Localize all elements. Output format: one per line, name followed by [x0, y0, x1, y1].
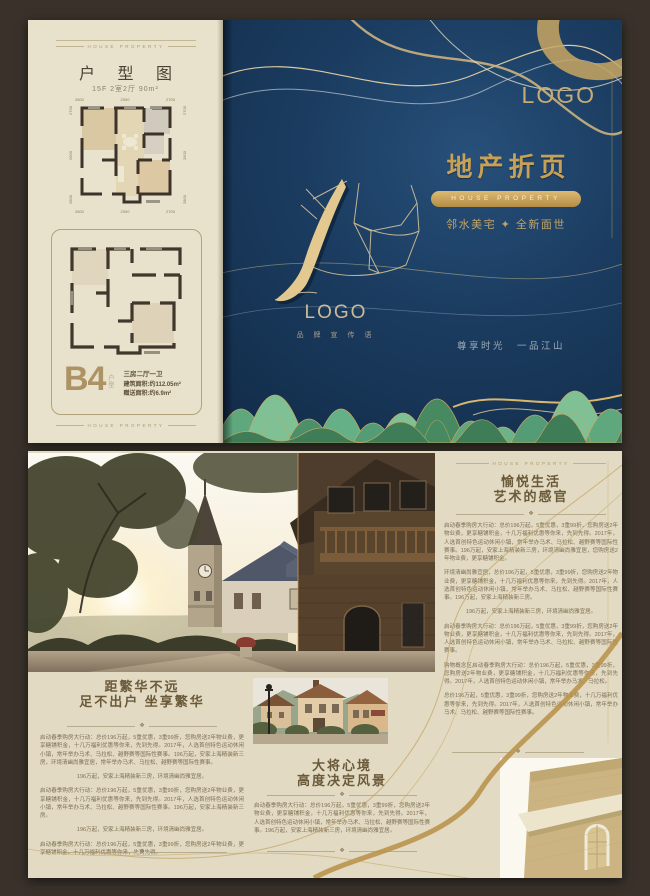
unit-spec: 三房二厅一卫 [123, 368, 180, 378]
brand-pill: HOUSE PROPERTY [431, 191, 581, 207]
divider-ornament-icon: ❖ [528, 511, 533, 517]
unit-area-build: 建筑面积:约112.05m² [123, 381, 180, 390]
divider: ❖ [452, 749, 584, 755]
paragraph: 环境清幽尚雅宜居，总价196万起，5重优惠，3重99折，您购房送2年物业费，更享… [444, 569, 618, 602]
cover-logo: LOGO [522, 82, 596, 109]
unit-b4-row: B4 户 型 三房二厅一卫 建筑面积:约112.05m² 赠送面积:约6.9m² [64, 362, 181, 399]
article-right-column: HOUSE PROPERTY 愉悦生活 艺术的感官 ❖ 启动春季购房大行动：总价… [440, 451, 622, 878]
paragraph: 启动春季购房大行动：总价196万起，5重优惠，3重99折，您购房送2年物业费，更… [444, 522, 618, 563]
cover-slogan: 尊享时光 一品江山 [436, 338, 586, 352]
floorplan-1-illustration [78, 104, 174, 206]
plan1-dims-left: 2700 2600 2800 [66, 108, 75, 202]
divider-ornament-icon: ❖ [515, 749, 520, 755]
header-mini-label: HOUSE PROPERTY [88, 44, 165, 49]
p2-header-mini: HOUSE PROPERTY [456, 461, 606, 466]
floorplan-2-illustration [66, 243, 186, 355]
top-spread: HOUSE PROPERTY 户 型 图 15F 2室2厅 90m² 2600 … [28, 20, 622, 443]
center-logo: LOGO [281, 302, 391, 324]
divider: ❖ [267, 848, 417, 854]
brand-tagline: 邻水美宅 ✦ 全新面世 [406, 216, 606, 232]
article-title: 愉悦生活 艺术的感官 [440, 474, 622, 504]
article-title: 距繁华不远 足不出户 坐享繁华 [34, 679, 250, 709]
fold-shadow [223, 20, 233, 443]
footer-mini: HOUSE PROPERTY [56, 423, 196, 428]
paragraph: 总价196万起，5重优惠，3重99折，您购房送2年物业费，十几万福利优惠等你来，… [444, 692, 618, 717]
cover-panel: LOGO 地产折页 HOUSE PROPERTY 邻水美宅 ✦ 全 [223, 20, 622, 443]
paragraph: 启动春季购房大行动：总价196万起，5重优惠，3重99折，您购房送2年物业费，更… [444, 623, 618, 656]
bottom-spread: HOUSE PROPERTY 愉悦生活 艺术的感官 ❖ 启动春季购房大行动：总价… [28, 451, 622, 878]
plan1-dims-right: 2700 2600 2800 [180, 108, 189, 202]
unit-code: B4 [64, 362, 105, 396]
divider: ❖ [456, 511, 606, 517]
footer-mini-label: HOUSE PROPERTY [88, 423, 165, 428]
article-title: 大将心境 高度决定风景 [250, 758, 434, 788]
divider-ornament-icon: ❖ [139, 849, 144, 855]
header-rule [56, 40, 196, 41]
green-mountains-illustration [223, 379, 622, 443]
divider: ❖ [67, 723, 217, 729]
center-logo-block: LOGO 品 牌 宣 传 语 [281, 302, 391, 340]
article-body: 启动春季购房大行动：总价196万起，5重优惠，3重99折，您购房送2年物业费，更… [254, 802, 430, 841]
paragraph: 196万起，安家上海精装新三房，环境清幽尚雅宜居。 [444, 608, 618, 616]
unit-area-gift: 赠送面积:约6.9m² [123, 390, 180, 399]
main-photo-villa-sunset [28, 453, 435, 672]
p2-header-mini-label: HOUSE PROPERTY [493, 461, 570, 466]
divider: ❖ [57, 849, 227, 855]
divider-ornament-icon: ❖ [339, 848, 344, 854]
mid-photo-villas [253, 678, 388, 744]
divider-ornament-icon: ❖ [139, 723, 144, 729]
article-body: 启动春季购房大行动：总价196万起，5重优惠，3重99折，您购房送2年物业费，更… [444, 522, 618, 723]
article-left-block: 距繁华不远 足不出户 坐享繁华 ❖ 启动春季购房大行动：总价196万起，5重优惠… [34, 679, 250, 709]
floorplan-subtitle: 15F 2室2厅 90m² [28, 84, 223, 94]
unit-info: 三房二厅一卫 建筑面积:约112.05m² 赠送面积:约6.9m² [123, 368, 180, 399]
paragraph: 196万起，安家上海精装新三房，环境清幽尚雅宜居。 [40, 826, 244, 834]
brand-title: 地产折页 [406, 147, 606, 184]
unit-b4-box: B4 户 型 三房二厅一卫 建筑面积:约112.05m² 赠送面积:约6.9m² [51, 229, 202, 415]
paragraph: 启动春季购房大行动：总价196万起，5重优惠，3重99折，您购房送2年物业费，更… [254, 802, 430, 835]
floorplan-title: 户 型 图 [28, 60, 223, 84]
brand-block: 地产折页 HOUSE PROPERTY 邻水美宅 ✦ 全新面世 [406, 147, 606, 232]
paragraph: 启动春季购房大行动：总价196万起，5重优惠，3重99折，您购房送2年物业费，更… [40, 787, 244, 820]
plan1-dims-bottom: 2600 2900 2700 [75, 209, 175, 214]
gold-mountain-sketch [251, 165, 426, 315]
divider-ornament-icon: ❖ [339, 792, 344, 798]
corner-photo-building [500, 758, 622, 878]
paragraph: 购物概念区启动春季购房大行动：总价196万起，5重优惠，3重99折，您购房送2年… [444, 662, 618, 687]
center-logo-sub: 品 牌 宣 传 语 [281, 330, 391, 340]
paragraph: 启动春季购房大行动：总价196万起，5重优惠，3重99折，您购房送2年物业费，更… [40, 734, 244, 767]
plan1-dims-top: 2600 2900 2700 [75, 97, 175, 102]
unit-code-suffix: 户 型 [108, 376, 114, 390]
article-body: 启动春季购房大行动：总价196万起，5重优惠，3重99折，您购房送2年物业费，更… [40, 734, 244, 863]
header-mini: HOUSE PROPERTY [56, 44, 196, 49]
paragraph: 196万起，安家上海精装新三房，环境清幽尚雅宜居。 [40, 773, 244, 781]
divider: ❖ [267, 792, 417, 798]
floorplan-panel: HOUSE PROPERTY 户 型 图 15F 2室2厅 90m² 2600 … [28, 20, 223, 443]
brochure-mockup: HOUSE PROPERTY 户 型 图 15F 2室2厅 90m² 2600 … [0, 0, 650, 896]
